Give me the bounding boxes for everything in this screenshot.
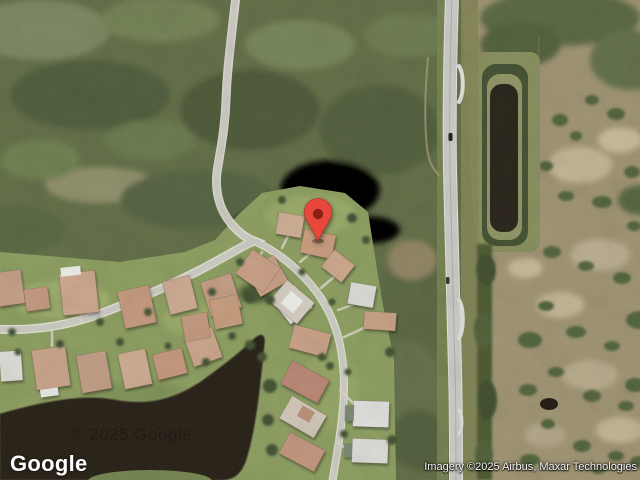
satellite-imagery bbox=[0, 0, 640, 480]
map-canvas[interactable]: © 2025 Google Google Imagery ©2025 Airbu… bbox=[0, 0, 640, 480]
imagery-attribution: Imagery ©2025 Airbus, Maxar Technologies bbox=[424, 461, 637, 473]
google-logo[interactable]: Google bbox=[10, 451, 88, 477]
google-watermark: © 2025 Google bbox=[71, 425, 192, 445]
